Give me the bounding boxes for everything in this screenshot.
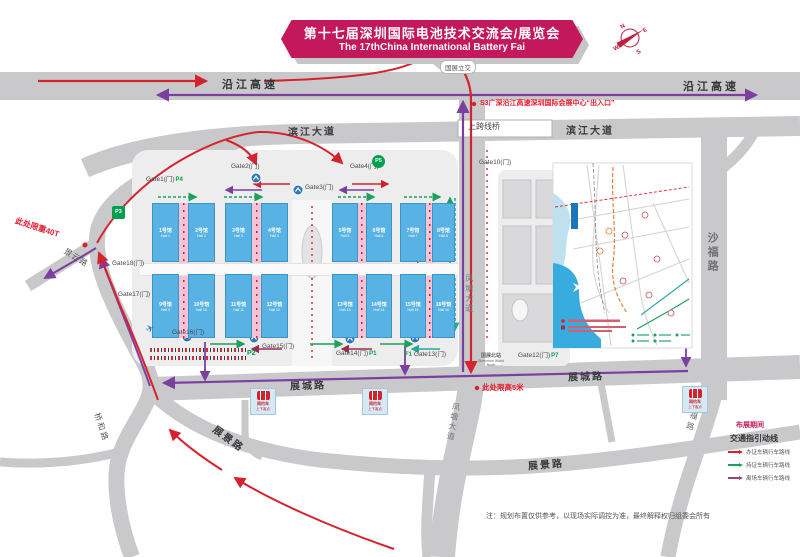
hall-name-en: Hall 7 (401, 234, 425, 238)
gate12-label: Gate12(门)P7 (518, 352, 559, 360)
hall-name-en: Hall 14 (367, 308, 391, 312)
banner-title: 第十七届深圳国际电池技术交流会/展览会 (281, 23, 583, 42)
compass-s: S (636, 49, 643, 56)
south-stub-road (427, 468, 430, 557)
traffic-guide-map: N E S W (0, 0, 800, 557)
s3-exit-notice: S3广深沿江高速深圳国际会展中心“出入口” (480, 100, 615, 108)
hall-name-en: Hall 2 (189, 234, 214, 238)
yanjiang-left-label: 沿江高速 (222, 79, 278, 91)
hall-name-cn: 3号馆 (226, 227, 251, 234)
hall-name-cn: 4号馆 (262, 227, 287, 234)
fengtang-mid-label: 凤塘大道 (464, 274, 473, 314)
legend-arrow-icon (739, 463, 743, 467)
legend-title: 布展期间 (736, 420, 800, 430)
gate17-label: Gate17(门) (118, 291, 150, 298)
gate15-label: Gate15(门) (262, 343, 294, 350)
gate14-label: Gate14(门)P1 (336, 350, 377, 358)
hall-name-cn: 2号馆 (189, 227, 214, 234)
hall-hall-16: 16号馆Hall 16 (432, 274, 455, 338)
pickup-point-1: 网约车 上下客点 (250, 388, 276, 415)
car-icon (689, 389, 702, 398)
hall-hall-15: 15号馆Hall 15 (400, 274, 426, 338)
banner-subtitle: The 17thChina International Battery Fai (281, 42, 583, 53)
hall-name-en: Hall 1 (153, 234, 178, 238)
connector-road-2 (600, 378, 612, 442)
gate3-label: Gate3(门) (305, 184, 334, 191)
hall-hall-2: 2号馆Hall 2 (188, 203, 215, 262)
east-oval-hall (512, 299, 528, 321)
hall-name-en: Hall 8 (433, 234, 454, 238)
shafu-label: 沙福路 (706, 232, 718, 274)
hall-hall-5: 5号馆Hall 5 (332, 203, 358, 262)
vehicle-queue-row-1 (150, 348, 246, 352)
hall-name-cn: 7号馆 (401, 227, 425, 234)
legend-arrow-icon (739, 450, 743, 454)
hall-hall-1: 1号馆Hall 1 (152, 203, 179, 262)
hall-name-en: Hall 3 (226, 234, 251, 238)
hall-hall-4: 4号馆Hall 4 (261, 203, 288, 262)
route-legend: 布展期间 交通指引动线 办证车辆行车路线持证车辆行车路线离场车辆行车路线 (728, 420, 800, 487)
legend-item-0: 办证车辆行车路线 (728, 448, 800, 456)
hall-name-en: Hall 5 (333, 234, 357, 238)
legend-label: 持证车辆行车路线 (746, 461, 790, 469)
zhancheng-left-label: 展城路 (290, 380, 326, 392)
compass-icon: N E S W (605, 14, 657, 65)
legend-item-2: 离场车辆行车路线 (728, 474, 800, 482)
legend-line (728, 451, 739, 453)
pickup-point-2: 网约车 上下客点 (362, 388, 388, 415)
hall-name-cn: 9号馆 (153, 301, 178, 308)
yanjiang-right-label: 沿江高速 (683, 81, 739, 93)
hall-hall-8: 8号馆Hall 8 (432, 203, 455, 262)
binjiang-right-label: 滨江大道 (566, 126, 614, 137)
compass-e: E (642, 27, 649, 34)
car-icon (257, 391, 270, 400)
gate18-label: Gate18(门) (112, 260, 144, 267)
metro-station-label: 国展北站 Shenzhen World North (474, 352, 508, 367)
hall-name-cn: 10号馆 (189, 301, 214, 308)
hall-name-cn: 6号馆 (367, 227, 391, 234)
hall-name-en: Hall 11 (226, 308, 251, 312)
overpass-label: 上跨线桥 (468, 123, 500, 132)
hall-name-cn: 11号馆 (226, 301, 251, 308)
hall-name-cn: 15号馆 (401, 301, 425, 308)
title-banner: 第十七届深圳国际电池技术交流会/展览会 The 17thChina Intern… (281, 20, 591, 64)
hall-hall-13: 13号馆Hall 13 (332, 274, 358, 338)
gate13-label: F1 Gate13(门) (404, 351, 446, 359)
hall-hall-7: 7号馆Hall 7 (400, 203, 426, 262)
vehicle-queue-row-2 (150, 356, 246, 360)
parking-p5-icon: P5 (372, 155, 385, 168)
gate16-label: Gate16(门) (172, 329, 204, 336)
compass-n: N (620, 23, 627, 30)
interchange-label: 国展立交 (440, 60, 476, 74)
legend-label: 办证车辆行车路线 (746, 448, 790, 456)
hall-name-cn: 14号馆 (367, 301, 391, 308)
legend-line (728, 464, 739, 466)
height-limit-notice: 此处限高5米 (482, 384, 524, 392)
hall-name-cn: 1号馆 (153, 227, 178, 234)
hall-name-cn: 12号馆 (262, 301, 287, 308)
connector-road-3 (0, 452, 120, 463)
hall-name-en: Hall 4 (262, 234, 287, 238)
hall-hall-12: 12号馆Hall 12 (261, 274, 288, 338)
hall-name-en: Hall 6 (367, 234, 391, 238)
legend-arrow-icon (739, 476, 743, 480)
hall-name-cn: 16号馆 (433, 301, 454, 308)
gate1-label: Gate1(门)P4 (146, 176, 183, 184)
legend-line (728, 477, 739, 479)
disclaimer-note: 注：规划布置仅供参考，以现场实际调控为准，最终解释权归组委会所有 (486, 511, 710, 521)
gate2-label: Gate2(门) (231, 163, 260, 170)
hall-name-cn: 5号馆 (333, 227, 357, 234)
hall-name-en: Hall 13 (333, 308, 357, 312)
pickup-point-3: 网约车 上下客点 (682, 386, 708, 413)
binjiang-left-label: 滨江大道 (288, 127, 336, 139)
hall-name-en: Hall 15 (401, 308, 425, 312)
inset-map (553, 163, 692, 348)
hall-name-cn: 8号馆 (433, 227, 454, 234)
parking-p2-label: P2 (247, 350, 256, 358)
zhancheng-right-label: 展城路 (568, 371, 604, 383)
hall-name-cn: 13号馆 (333, 301, 357, 308)
hall-hall-3: 3号馆Hall 3 (225, 203, 252, 262)
gate10-label: Gate10(门) (479, 159, 511, 166)
hall-name-en: Hall 16 (433, 308, 454, 312)
hall-name-en: Hall 10 (189, 308, 214, 312)
car-icon (369, 391, 382, 400)
hall-name-en: Hall 9 (153, 308, 178, 312)
legend-subtitle: 交通指引动线 (730, 433, 800, 444)
hall-hall-6: 6号馆Hall 6 (366, 203, 392, 262)
legend-item-1: 持证车辆行车路线 (728, 461, 800, 469)
hall-hall-11: 11号馆Hall 11 (225, 274, 252, 338)
hall-hall-14: 14号馆Hall 14 (366, 274, 392, 338)
parking-p3-icon: P3 (112, 206, 125, 219)
legend-label: 离场车辆行车路线 (746, 474, 790, 482)
hall-name-en: Hall 12 (262, 308, 287, 312)
